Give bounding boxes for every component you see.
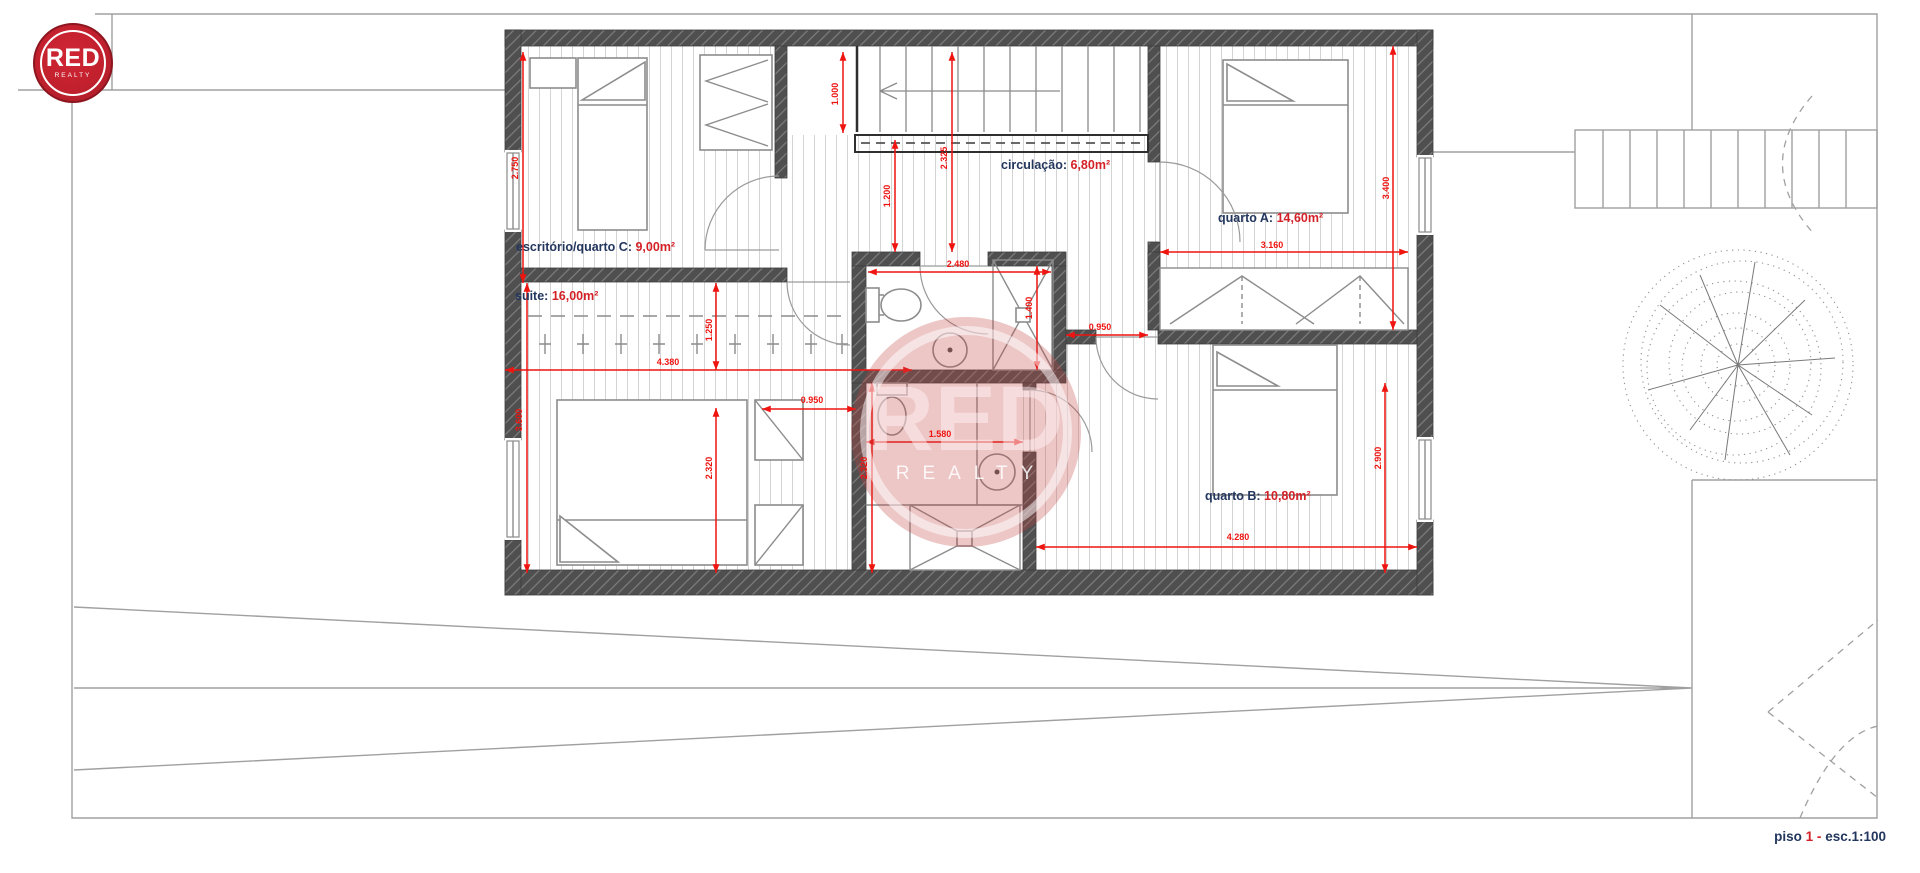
floor-plan-page: RED REALTY RED REALTY escritório/quarto … xyxy=(0,0,1920,873)
logo-title: RED xyxy=(46,46,100,71)
exterior-stairs xyxy=(1575,130,1877,208)
floor-label: piso xyxy=(1774,829,1802,844)
dimension-label-circulation-width: 1.200 xyxy=(882,185,892,208)
room-area: 9,00m² xyxy=(635,240,675,254)
dimension-label-hall-depth: 2.325 xyxy=(939,147,949,170)
floor-plan-drawing xyxy=(0,0,1920,873)
room-area: 6,80m² xyxy=(1071,158,1111,172)
room-label-escritorio: escritório/quarto C: 9,00m² xyxy=(516,240,675,254)
room-name: escritório/quarto C: xyxy=(516,240,632,254)
scale-value: esc.1:100 xyxy=(1825,829,1886,844)
dimension-label-suite-width: 4.380 xyxy=(657,357,680,367)
room-name: quarto A: xyxy=(1218,211,1273,225)
room-name: circulação: xyxy=(1001,158,1067,172)
dashed-landscaping xyxy=(1768,96,1878,818)
dimension-label-quarto-b-width: 4.280 xyxy=(1227,532,1250,542)
dimension-label-bath2-width: 1.580 xyxy=(929,429,952,439)
room-area: 10,80m² xyxy=(1264,489,1311,503)
toilet-bath1 xyxy=(866,288,921,322)
dimension-label-bath2-depth: 2.320 xyxy=(859,457,869,480)
bed-quarto-a xyxy=(1223,60,1348,213)
garden-tree xyxy=(1623,250,1853,480)
sink-bath1 xyxy=(933,333,967,367)
dimension-label-suite-depth: 3.600 xyxy=(514,409,524,432)
dimension-label-quarto-b-depth: 2.900 xyxy=(1373,447,1383,470)
floor-number: 1 xyxy=(1806,829,1814,844)
floor-scale-label: piso 1 - esc.1:100 xyxy=(1774,829,1886,844)
room-name: quarto B: xyxy=(1205,489,1261,503)
sink-bath2 xyxy=(979,454,1015,490)
separator: - xyxy=(1817,829,1822,844)
room-label-quarto-a: quarto A: 14,60m² xyxy=(1218,211,1323,225)
room-area: 16,00m² xyxy=(552,289,599,303)
dimension-label-quarto-a-depth: 3.400 xyxy=(1381,177,1391,200)
toilet-bath2 xyxy=(877,383,907,435)
dimension-label-room-c-height: 2.750 xyxy=(510,157,520,180)
room-area: 14,60m² xyxy=(1277,211,1324,225)
dimension-label-bath1-width: 2.480 xyxy=(947,259,970,269)
room-name: suite: xyxy=(515,289,548,303)
room-label-suite: suite: 16,00m² xyxy=(515,289,598,303)
garden-triangles xyxy=(74,607,1692,770)
dimension-label-closet-depth: 1.250 xyxy=(704,319,714,342)
room-label-quarto-b: quarto B: 10,80m² xyxy=(1205,489,1311,503)
bed-suite xyxy=(557,400,747,565)
dimension-label-shower-depth: 1.400 xyxy=(1024,297,1034,320)
dimension-label-suite-bed-zone: 2.320 xyxy=(704,457,714,480)
brand-logo: RED REALTY xyxy=(33,23,113,103)
bed-quarto-b xyxy=(1213,345,1337,495)
dimension-label-wardrobe-width: 3.160 xyxy=(1261,240,1284,250)
dimension-label-entry-nook: 0.950 xyxy=(801,395,824,405)
dimension-label-landing-width: 1.000 xyxy=(830,83,840,106)
dimension-label-corridor-width: 0.950 xyxy=(1089,322,1112,332)
room-label-circulacao: circulação: 6,80m² xyxy=(1001,158,1110,172)
logo-subtitle: REALTY xyxy=(46,73,100,80)
closet-room-c xyxy=(700,55,772,150)
